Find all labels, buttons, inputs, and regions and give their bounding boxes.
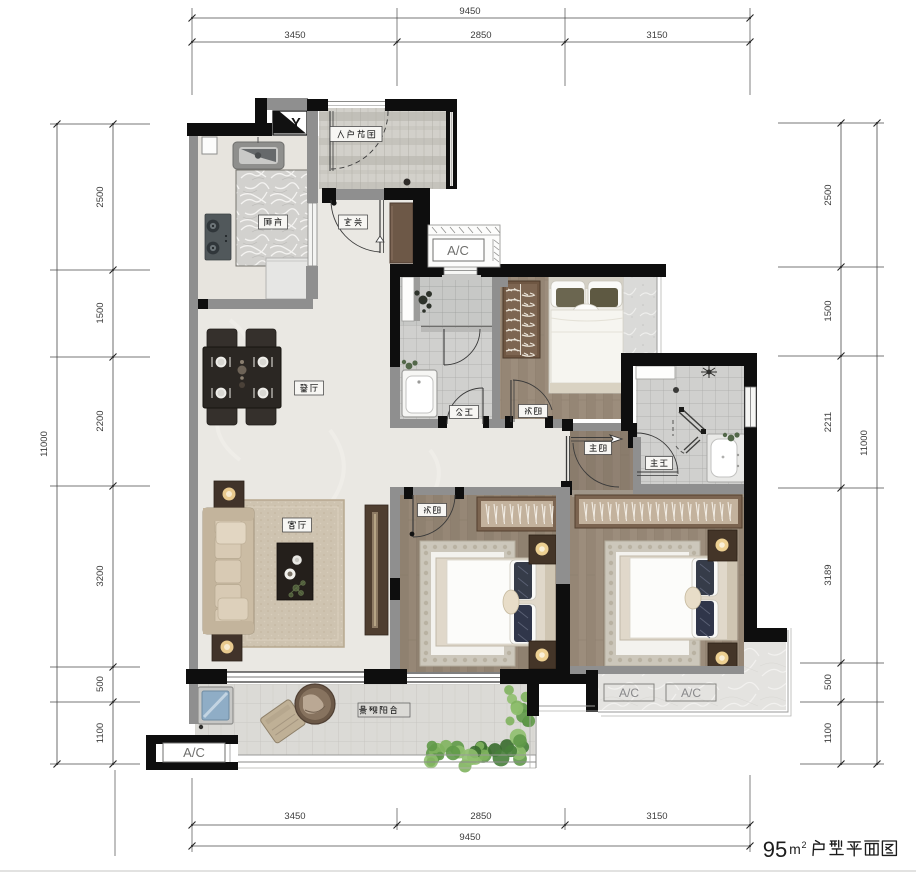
svg-text:A/C: A/C (183, 745, 205, 760)
svg-text:2211: 2211 (823, 412, 834, 432)
svg-text:3450: 3450 (284, 30, 305, 41)
svg-text:A/C: A/C (447, 243, 469, 258)
svg-text:1500: 1500 (823, 300, 834, 321)
svg-text:A/C: A/C (681, 686, 701, 700)
svg-text:3150: 3150 (646, 30, 667, 41)
svg-text:2200: 2200 (95, 410, 106, 431)
svg-text:11000: 11000 (39, 431, 50, 457)
svg-text:500: 500 (823, 674, 834, 690)
svg-text:2850: 2850 (470, 811, 491, 822)
svg-text:2: 2 (801, 840, 806, 850)
svg-text:1100: 1100 (823, 723, 834, 743)
svg-text:11000: 11000 (859, 430, 870, 456)
svg-text:A/C: A/C (619, 686, 639, 700)
svg-text:Y: Y (291, 116, 301, 132)
svg-text:2500: 2500 (823, 184, 834, 205)
svg-text:3189: 3189 (823, 564, 834, 585)
svg-text:m: m (789, 841, 801, 857)
svg-text:3200: 3200 (95, 565, 106, 586)
svg-text:9450: 9450 (459, 832, 480, 843)
svg-text:1500: 1500 (95, 302, 106, 323)
svg-text:3450: 3450 (284, 811, 305, 822)
svg-text:3150: 3150 (646, 811, 667, 822)
svg-text:9450: 9450 (459, 6, 480, 17)
svg-text:500: 500 (95, 676, 106, 692)
svg-text:1100: 1100 (95, 723, 106, 743)
svg-text:95: 95 (763, 837, 787, 862)
svg-text:2850: 2850 (470, 30, 491, 41)
svg-text:2500: 2500 (95, 186, 106, 207)
